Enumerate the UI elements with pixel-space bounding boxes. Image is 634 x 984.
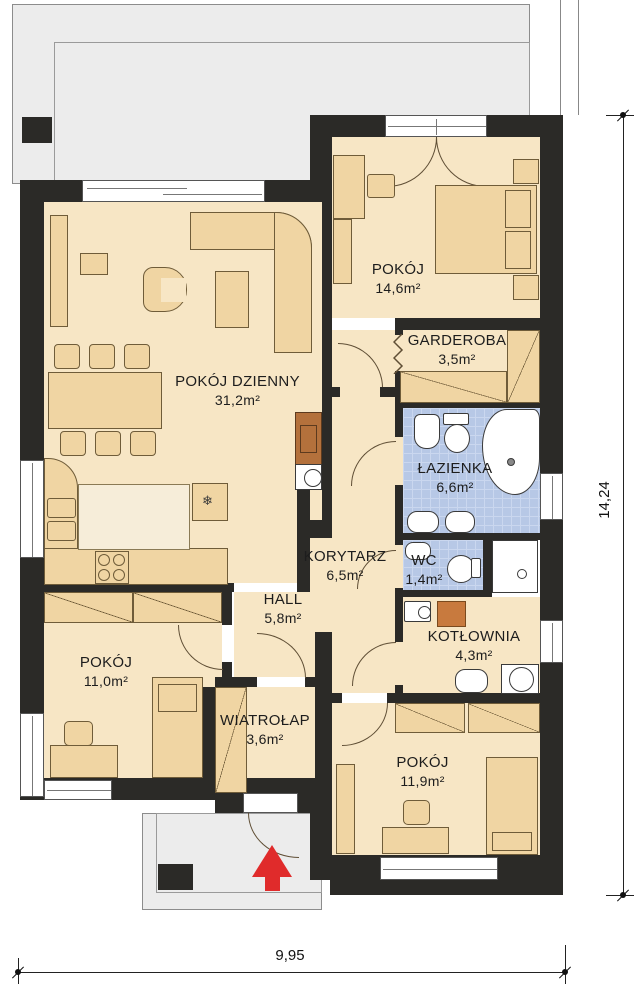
wc-toilet-tank — [471, 558, 481, 578]
room-name: POKÓJ — [396, 754, 448, 771]
nightstand — [513, 275, 539, 300]
dimension-line-bottom — [18, 972, 566, 973]
room-name: POKÓJ — [80, 654, 132, 671]
fridge: ❄ — [192, 483, 228, 521]
snowflake-icon: ❄ — [202, 493, 213, 509]
wall-bedroom2-east-a — [222, 592, 232, 625]
lazienka-window — [540, 473, 563, 520]
desk-chair — [64, 721, 93, 746]
desk — [50, 745, 118, 778]
wall-spine — [322, 202, 332, 520]
laundry-basin — [455, 669, 488, 693]
wall-bedroom2-east-b — [222, 662, 232, 687]
terrace-sliding-door — [82, 180, 265, 202]
garderoba-wardrobe — [400, 371, 507, 403]
room-label-korytarz: KORYTARZ 6,5m² — [293, 548, 397, 584]
room-name: KOTŁOWNIA — [428, 628, 521, 645]
wardrobe — [333, 155, 365, 219]
double-bed — [435, 185, 537, 274]
room-area: 11,0m² — [58, 672, 154, 690]
room-label-bedroom1: POKÓJ 14,6m² — [348, 261, 448, 297]
room-area: 11,9m² — [374, 772, 471, 790]
dining-chair — [89, 344, 115, 369]
sofa-ottoman — [215, 271, 249, 328]
room-area: 14,6m² — [348, 279, 448, 297]
dining-chair — [130, 431, 156, 456]
room-name: POKÓJ — [372, 261, 424, 278]
wall-corridor-east-e — [395, 685, 403, 693]
room-label-lazienka: ŁAZIENKA 6,6m² — [403, 460, 507, 496]
armchair — [143, 267, 187, 312]
dimension-cross — [565, 945, 566, 984]
extension-line — [560, 0, 561, 115]
kitchen-worktop — [78, 484, 190, 550]
room-label-bedroom3: POKÓJ 11,9m² — [374, 754, 471, 790]
kotlownia-window — [540, 620, 563, 663]
toilet-bowl — [444, 424, 470, 453]
extension-line — [578, 0, 579, 115]
room-area: 3,6m² — [210, 730, 320, 748]
wall-hall-korytarz — [315, 632, 332, 677]
chair — [367, 174, 395, 198]
tv-cabinet — [50, 215, 68, 327]
room-area: 5,8m² — [238, 609, 328, 627]
stove — [95, 551, 129, 584]
room-name: GARDEROBA — [408, 332, 507, 349]
room-name: WC — [411, 552, 437, 569]
porch-pillar — [158, 864, 193, 890]
nightstand — [513, 159, 539, 184]
sofa-back-right — [274, 212, 312, 353]
bedroom2-window-south — [44, 780, 112, 800]
entrance-arrow — [252, 845, 292, 877]
entry-door-opening — [243, 793, 298, 813]
room-label-living: POKÓJ DZIENNY 31,2m² — [150, 373, 325, 409]
room-area: 4,3m² — [408, 646, 540, 664]
shower — [492, 540, 538, 593]
oven-appliance — [295, 464, 322, 490]
room-label-hall: HALL 5,8m² — [238, 591, 328, 627]
room-area: 6,5m² — [293, 566, 397, 584]
floor-plan: ❄ — [0, 0, 634, 984]
wall-hall-wiatrolap-b — [305, 677, 332, 687]
wall-bed1-south — [395, 318, 540, 330]
kitchen-sink-basin — [47, 498, 76, 518]
bedroom3-wardrobe — [395, 703, 465, 733]
dimension-label-height: 14,24 — [596, 470, 614, 530]
room-area: 3,5m² — [398, 350, 516, 368]
dining-chair — [124, 344, 150, 369]
single-bed — [486, 757, 538, 855]
kitchen-sink-basin — [47, 521, 76, 541]
washbasin — [407, 511, 439, 533]
room-label-wiatrolap: WIATROŁAP 3,6m² — [210, 712, 320, 748]
room-label-wc: WC 1,4m² — [398, 552, 450, 588]
desk-chair — [403, 800, 430, 825]
dining-chair — [60, 431, 86, 456]
utility-sink — [404, 601, 431, 622]
room-area: 6,6m² — [403, 478, 507, 496]
kitchen-counter-bottom — [44, 548, 228, 585]
wall-kotlownia-south — [387, 693, 563, 703]
washing-machine — [501, 664, 539, 694]
kitchen-window — [20, 460, 44, 558]
room-name: POKÓJ DZIENNY — [175, 373, 300, 390]
boiler — [437, 601, 466, 627]
room-name: WIATROŁAP — [220, 712, 310, 729]
room-label-kotlownia: KOTŁOWNIA 4,3m² — [408, 628, 540, 664]
single-bed — [152, 677, 203, 778]
bedroom3-window — [380, 857, 498, 880]
wall-bedroom3-west — [320, 693, 332, 855]
dimension-line-right — [623, 115, 624, 895]
room-label-bedroom2: POKÓJ 11,0m² — [58, 654, 154, 690]
dimension-label-width: 9,95 — [245, 947, 335, 965]
wall-wc-south — [395, 590, 492, 597]
room-area: 31,2m² — [150, 391, 325, 409]
room-label-garderoba: GARDEROBA 3,5m² — [398, 332, 516, 368]
wall-kotlownia-south-stub — [332, 693, 342, 703]
bedroom3-wardrobe — [468, 703, 540, 733]
bedroom2-window-west — [20, 713, 44, 797]
shelf — [336, 764, 355, 854]
room-name: ŁAZIENKA — [418, 460, 493, 477]
dining-chair — [54, 344, 80, 369]
bedroom2-wardrobe — [44, 592, 133, 623]
desk — [382, 827, 449, 854]
wall-door-bedroom1-stub-a — [332, 387, 340, 397]
tv — [80, 253, 108, 275]
entrance-arrow-stem — [265, 876, 280, 891]
dining-table — [48, 372, 162, 429]
wall-connector-ne — [310, 137, 332, 202]
room-area: 1,4m² — [398, 570, 450, 588]
bidet — [414, 414, 440, 449]
washbasin — [445, 511, 475, 533]
terrace-pillar — [22, 117, 52, 143]
room-name: HALL — [264, 591, 303, 608]
bedroom2-wardrobe — [133, 592, 222, 623]
wall-lazienka-south — [395, 533, 540, 540]
bedroom1-french-door — [385, 115, 487, 137]
room-name: KORYTARZ — [304, 548, 387, 565]
dining-chair — [95, 431, 121, 456]
fireplace — [295, 412, 322, 465]
wall-wc-shower — [483, 540, 492, 593]
wall-spine-stub — [310, 520, 332, 538]
